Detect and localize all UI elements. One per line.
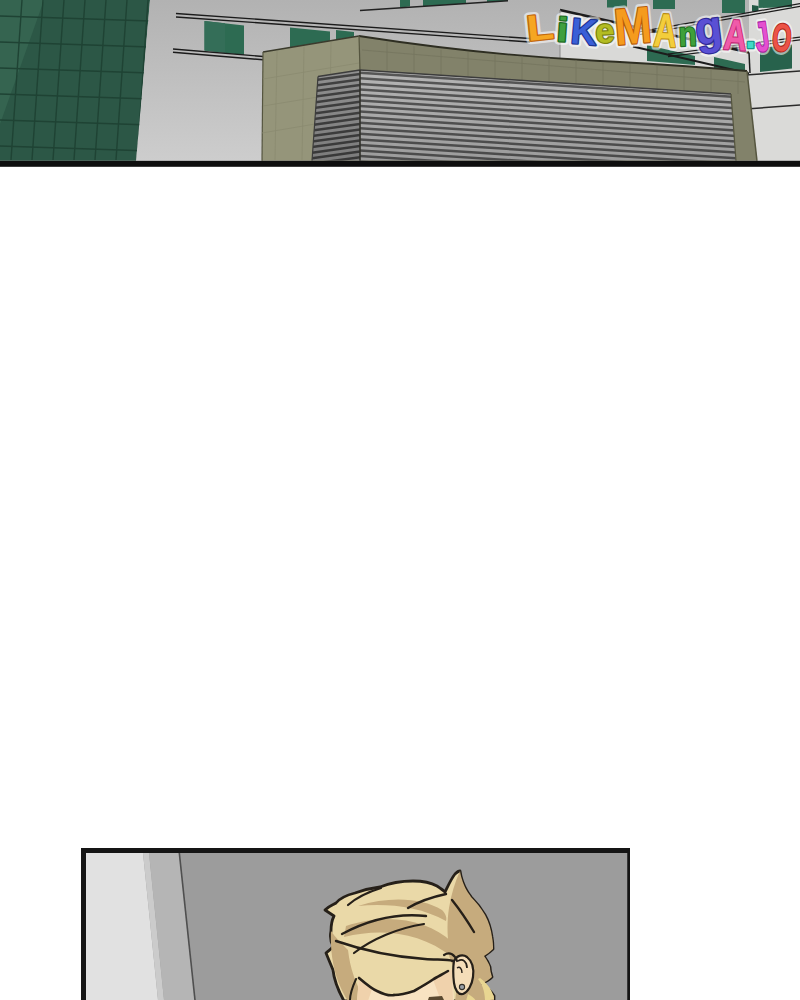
svg-text:A: A — [652, 4, 678, 58]
svg-text:L: L — [525, 6, 556, 49]
svg-text:e: e — [594, 11, 615, 50]
svg-text:M: M — [612, 0, 654, 56]
